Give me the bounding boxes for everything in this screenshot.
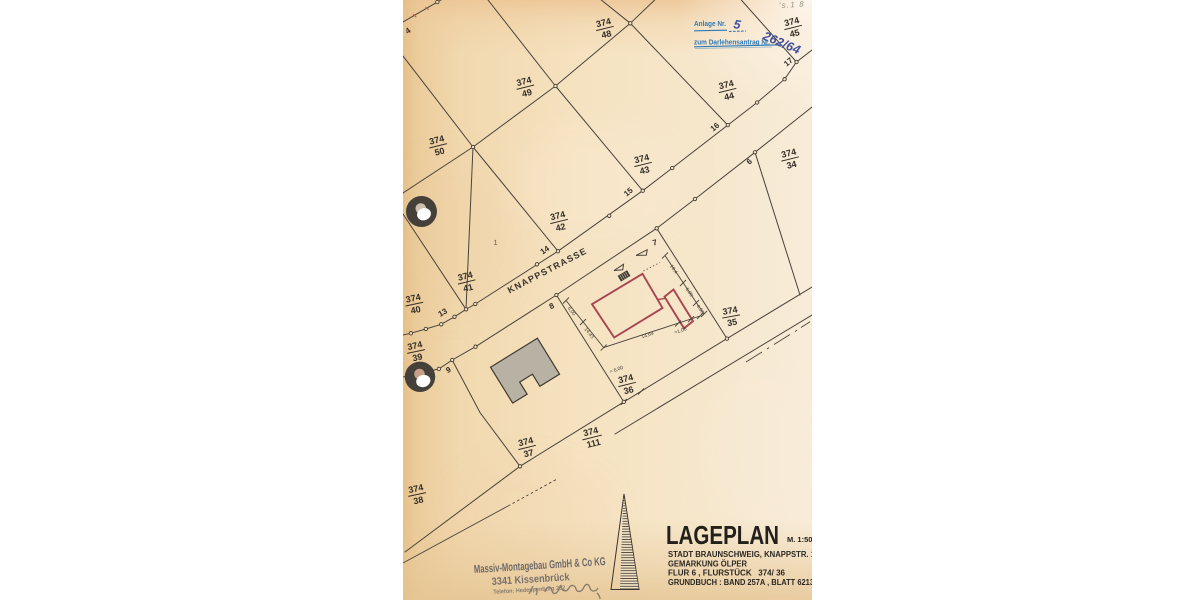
svg-text:Anlage Nr.: Anlage Nr. bbox=[694, 19, 726, 28]
svg-text:STADT BRAUNSCHWEIG, KNAPPSTR.: STADT BRAUNSCHWEIG, KNAPPSTR. 1 bbox=[668, 550, 816, 559]
svg-text:GEMARKUNG ÖLPER: GEMARKUNG ÖLPER bbox=[668, 560, 747, 569]
svg-text:FLUR 6 , FLURSTÜCK 374/ 36: FLUR 6 , FLURSTÜCK 374/ 36 bbox=[668, 569, 786, 578]
svg-text:38: 38 bbox=[412, 494, 424, 506]
svg-text:'s.1 8: 's.1 8 bbox=[779, 0, 806, 10]
svg-text:M. 1:500: M. 1:500 bbox=[787, 535, 817, 544]
svg-text:LAGEPLAN: LAGEPLAN bbox=[666, 520, 779, 550]
svg-text:40: 40 bbox=[410, 304, 422, 316]
svg-text:GRUNDBUCH : BAND 257A , BLATT: GRUNDBUCH : BAND 257A , BLATT 6213 bbox=[668, 578, 815, 587]
svg-text:35: 35 bbox=[726, 317, 738, 329]
svg-text:39: 39 bbox=[411, 351, 423, 363]
